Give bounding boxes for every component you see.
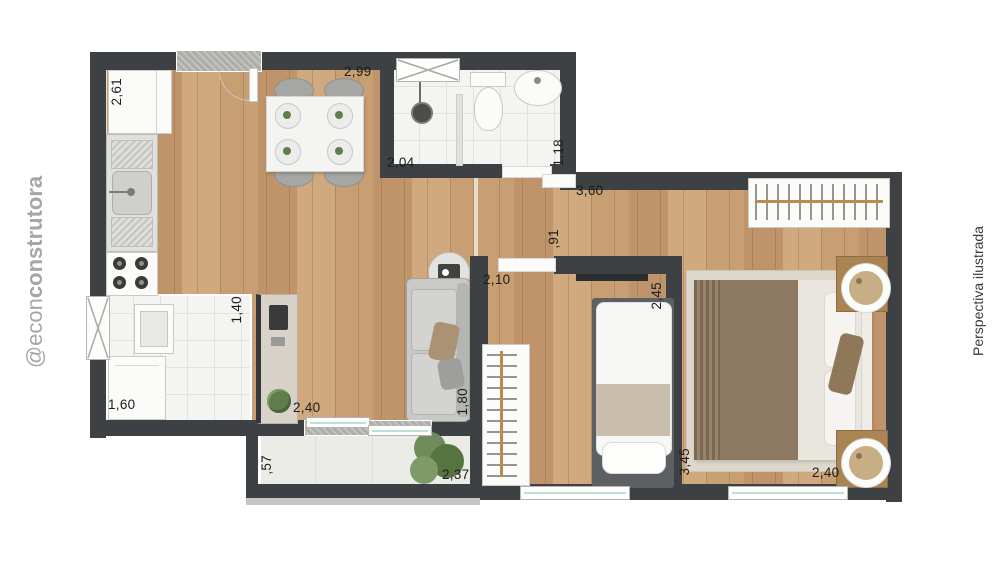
throw-pillow-gray xyxy=(437,357,466,391)
glass-pane xyxy=(732,492,844,494)
sink-faucet-icon xyxy=(534,77,541,84)
nightstand xyxy=(836,430,888,488)
dimension-label: 2,40 xyxy=(293,400,320,415)
wardrobe-rail xyxy=(755,200,883,203)
dimension-label: 2,45 xyxy=(649,282,664,309)
window-x-icon xyxy=(87,297,109,359)
decor-lens xyxy=(442,269,449,276)
stove-cooktop xyxy=(106,252,158,296)
bedroom1-door-threshold xyxy=(498,258,556,272)
corridor-door-threshold xyxy=(542,174,576,188)
watermark-brand: @econconstrutora xyxy=(22,122,48,422)
plant-foliage xyxy=(410,456,438,484)
floor-plan-stage: @econconstrutora Perspectiva ilustrada 2… xyxy=(0,0,1000,562)
shower-partition xyxy=(456,94,463,166)
dimension-label: 1,60 xyxy=(108,397,135,412)
dinner-plate xyxy=(327,103,353,129)
burner-icon xyxy=(113,276,126,289)
dinner-plate xyxy=(275,103,301,129)
dimension-label: 1,18 xyxy=(551,139,566,166)
balcony-sliding-door-panel xyxy=(368,425,432,436)
watermark-brand-prefix: @econ xyxy=(22,298,47,368)
toilet-tank xyxy=(470,72,506,87)
dining-table xyxy=(266,96,364,172)
counter-plant xyxy=(267,389,291,413)
faucet-arm xyxy=(109,191,127,193)
toilet-bowl xyxy=(474,87,503,131)
coffee-machine xyxy=(269,305,288,330)
glass-pane xyxy=(372,430,428,432)
single-bed xyxy=(592,298,674,488)
bathroom-sink xyxy=(514,70,562,106)
dimension-label: ,57 xyxy=(259,455,274,475)
laundry-tank xyxy=(134,304,174,354)
wall-bedroom1-north xyxy=(554,256,682,274)
dinner-plate xyxy=(275,139,301,165)
wardrobe-bedroom2 xyxy=(748,178,890,228)
shower-head-icon xyxy=(411,102,433,124)
dimension-label: 1,40 xyxy=(229,296,244,323)
round-lamp xyxy=(842,264,890,312)
round-lamp xyxy=(842,439,890,487)
tv-shelf-bedroom1 xyxy=(576,274,648,281)
nightstand xyxy=(836,256,888,312)
dimension-label: ,91 xyxy=(546,229,561,249)
dimension-label: 1,80 xyxy=(455,388,470,415)
bathroom-window xyxy=(396,58,460,82)
dimension-label: 2,04 xyxy=(387,155,414,170)
drainboard-top xyxy=(111,140,153,169)
sink-basin xyxy=(112,171,152,215)
single-bed-pillow xyxy=(602,442,666,474)
glass-pane xyxy=(310,422,366,424)
balcony-ledge xyxy=(246,498,480,505)
kitchen-sink-counter xyxy=(106,134,158,252)
dimension-label: 2,61 xyxy=(109,78,124,105)
wall-exterior-top xyxy=(90,52,576,70)
bedroom1-window xyxy=(520,486,630,500)
balcony-sliding-door-panel xyxy=(306,417,370,428)
counter-island xyxy=(256,294,298,424)
bedroom2-window xyxy=(728,486,848,500)
glass-pane xyxy=(524,492,626,494)
dimension-label: 2,40 xyxy=(812,465,839,480)
drainboard-bottom xyxy=(111,217,153,247)
washer-lid-line xyxy=(115,365,159,366)
burner-icon xyxy=(135,276,148,289)
watermark-note: Perspectiva ilustrada xyxy=(970,191,986,391)
wall-exterior-left xyxy=(90,52,106,438)
blanket-fringe xyxy=(694,280,720,460)
refrigerator-door-line xyxy=(156,71,157,133)
dimension-label: 3,45 xyxy=(677,448,692,475)
dimension-label: 2,37 xyxy=(442,467,469,482)
single-bed-blanket xyxy=(596,384,670,436)
dimension-label: 2,99 xyxy=(344,64,371,79)
faucet-icon xyxy=(127,188,135,196)
dimension-label: 3,60 xyxy=(576,183,603,198)
wall-bathroom-east xyxy=(560,52,576,190)
wardrobe-rail xyxy=(500,351,503,477)
wardrobe-bedroom1 xyxy=(482,344,530,486)
dimension-label: 2,10 xyxy=(483,272,510,287)
service-window xyxy=(86,296,110,360)
entry-door-leaf xyxy=(249,68,258,102)
burner-icon xyxy=(113,257,126,270)
burner-icon xyxy=(135,257,148,270)
dinner-plate xyxy=(327,139,353,165)
counter-appliance xyxy=(271,337,285,346)
window-x-icon xyxy=(397,59,459,81)
tank-basin xyxy=(140,311,168,347)
watermark-brand-bold: construtora xyxy=(22,176,47,298)
